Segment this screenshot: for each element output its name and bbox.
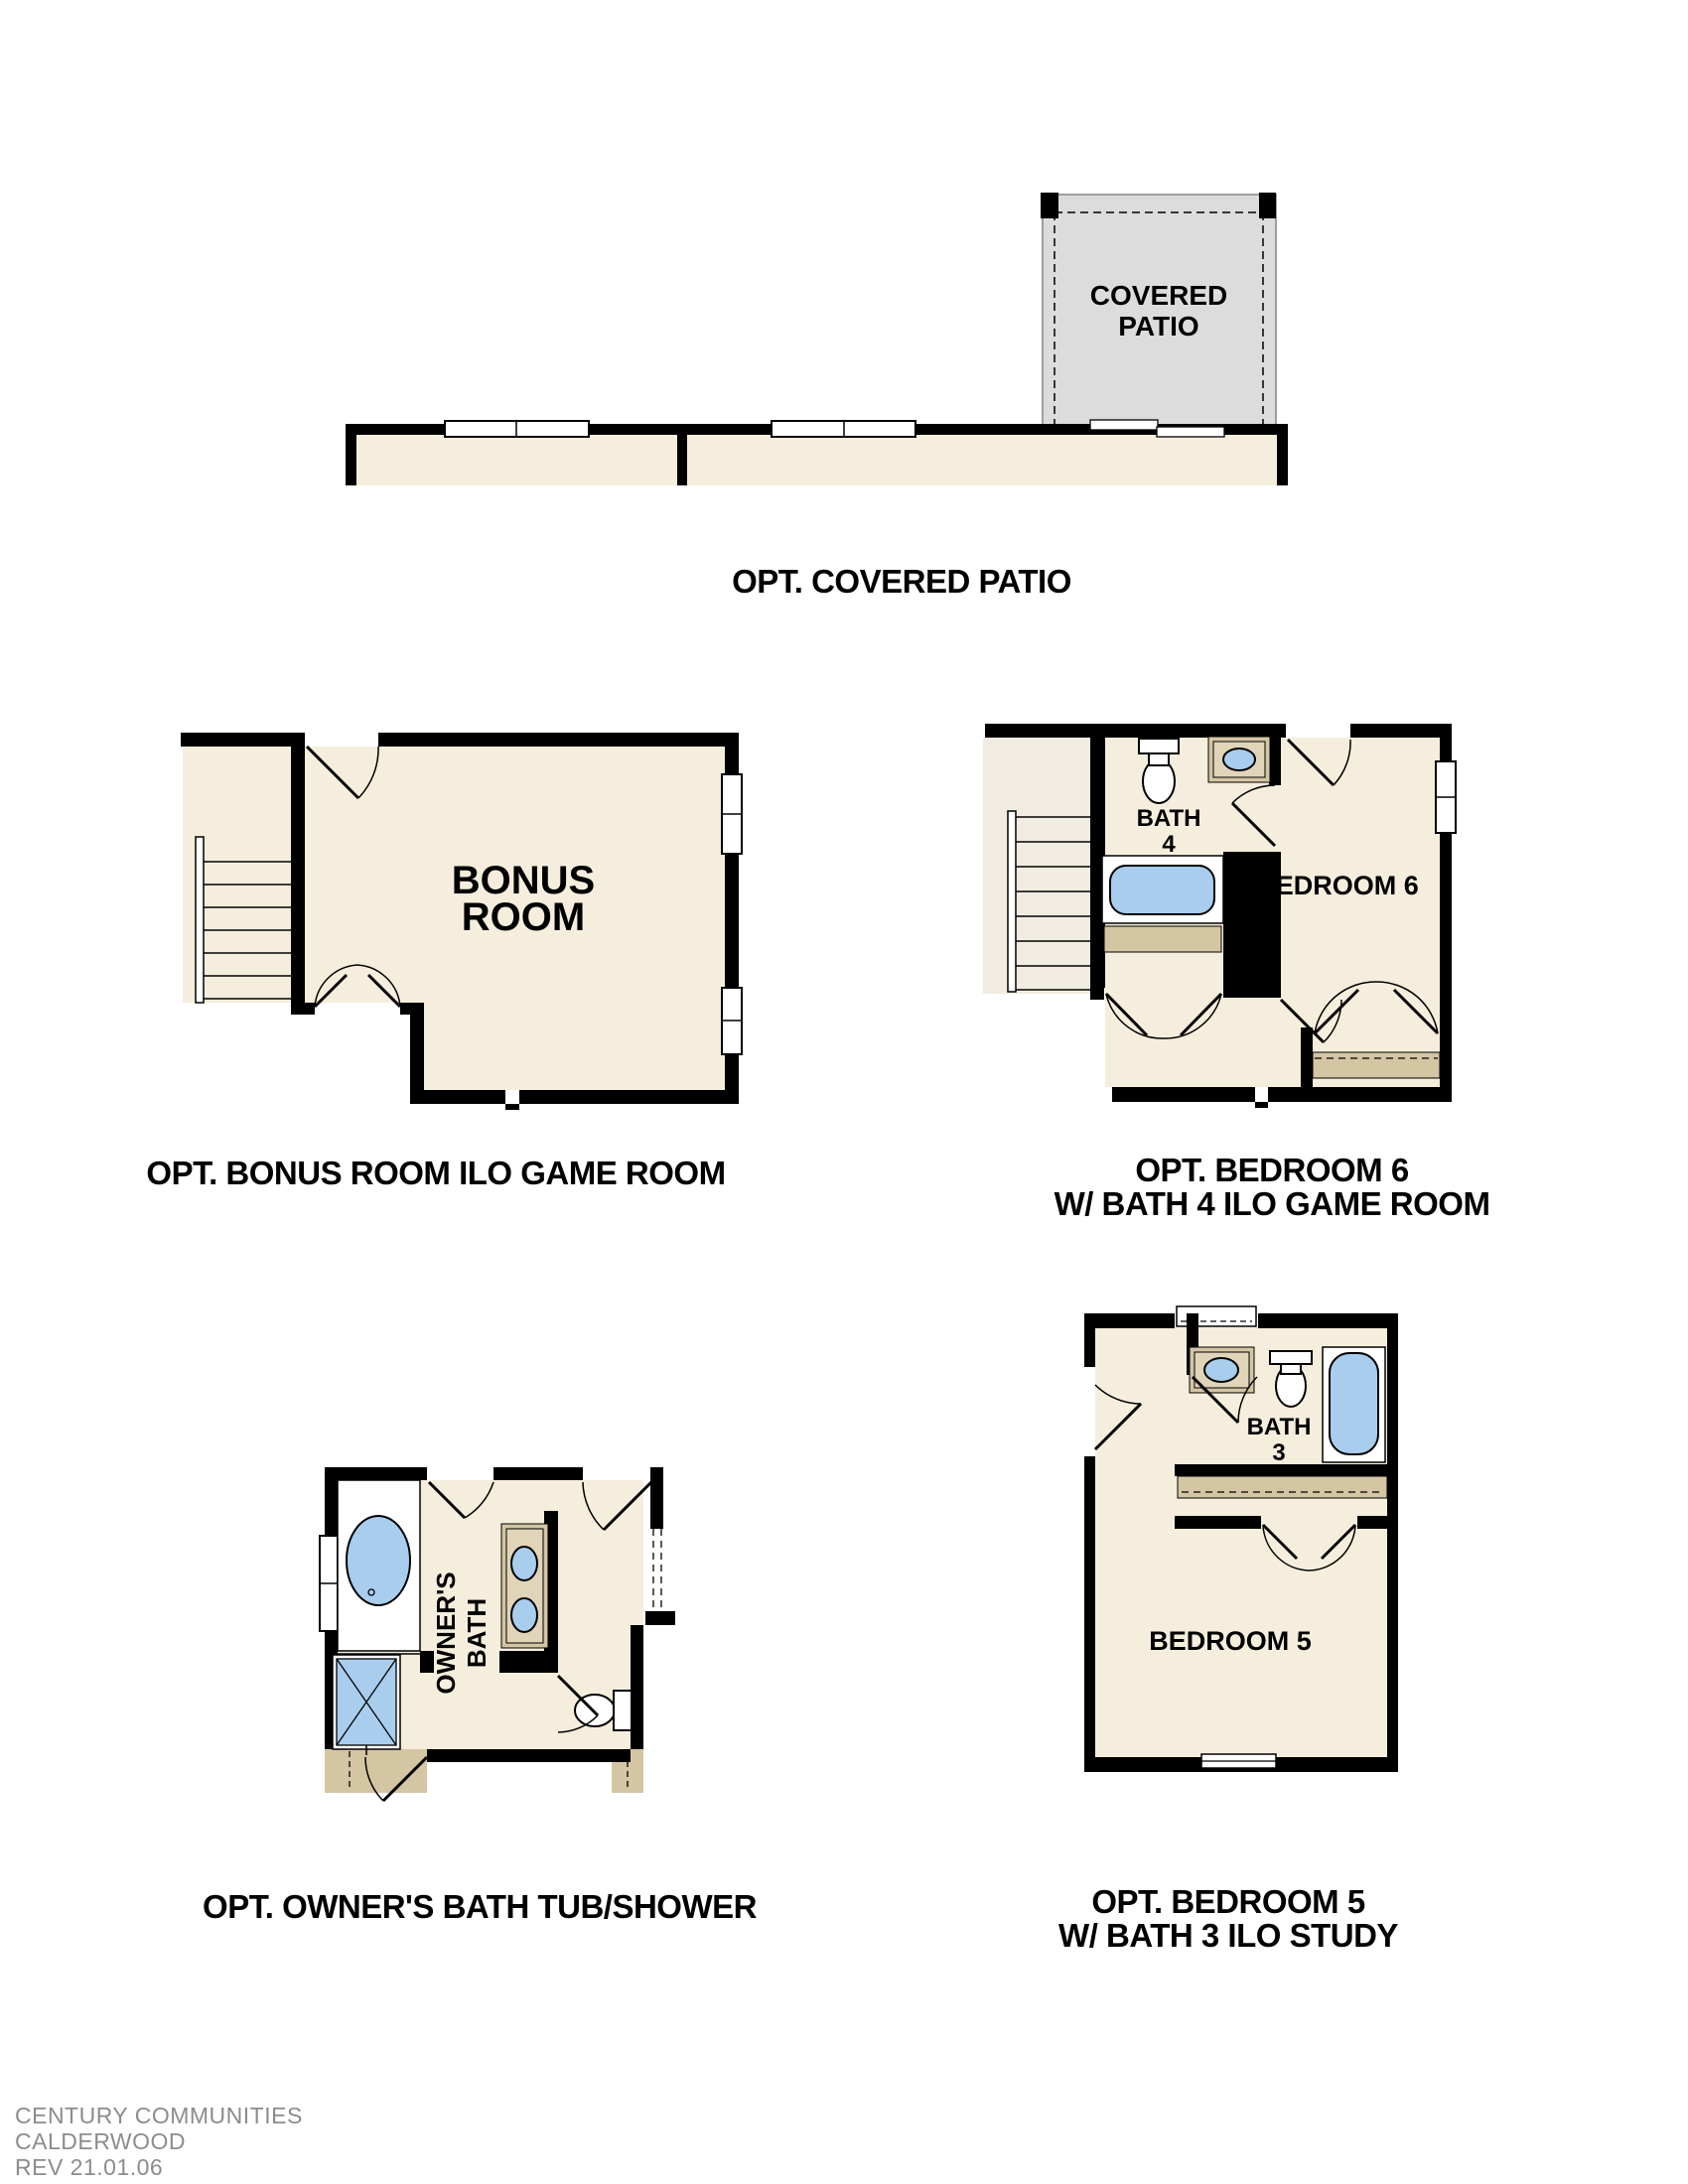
bonus-floor-lower [410,1003,739,1104]
double-sink-vanity [501,1524,548,1648]
bathtub [1102,856,1223,923]
bedroom6-caption-line2: W/ BATH 4 ILO GAME ROOM [1055,1185,1490,1222]
right-wall [1387,1313,1398,1757]
wall-left-stub [346,424,356,485]
stair-floor [983,738,1090,994]
owners-bath-caption: OPT. OWNER'S BATH TUB/SHOWER [203,1888,758,1925]
sink [1208,737,1270,782]
owners-bath-label-line1: OWNER'S [431,1571,461,1694]
top-wall [325,1467,427,1480]
plan-name: CALDERWOOD [15,2128,186,2154]
bonus-room-plan: BONUS ROOM [181,733,742,1110]
interior-wall [291,747,305,1003]
bathtub [1323,1347,1385,1462]
wall-break-tick [505,1104,519,1110]
bath-right-wall [1269,724,1281,785]
bottom-wall [427,1749,631,1762]
bath4-label-line1: BATH [1137,805,1201,832]
floor-plan-sheet: COVERED PATIO OPT. COVERED PATIO [0,0,1688,2184]
window [772,421,915,437]
left-wall-lower [1084,1456,1095,1757]
builder-name: CENTURY COMMUNITIES [15,2103,303,2128]
bottom-wall [1112,1087,1452,1102]
bonus-room-label-line2: ROOM [462,895,585,939]
wall-mid-stub [677,435,687,485]
shower [333,1655,400,1755]
patio-post-right [1259,193,1276,218]
cased-opening-dashed [653,1529,661,1611]
toilet [575,1691,632,1730]
closet-bottom-wall [1175,1516,1261,1529]
patio-post-left [1041,193,1058,218]
covered-patio-plan: COVERED PATIO [346,193,1288,485]
bottom-wall [410,1090,739,1104]
bedroom6-room-label: BEDROOM 6 [1256,871,1419,900]
wall-right-stub [1277,424,1288,485]
wall-break [505,1090,519,1104]
bedroom6-caption-line1: OPT. BEDROOM 6 [1135,1152,1409,1188]
bath4-label-line2: 4 [1162,831,1176,858]
top-wall [493,1467,583,1480]
top-wall [1350,724,1450,738]
window [1436,761,1456,833]
window [722,988,742,1054]
window [320,1536,338,1631]
bath3-label-line2: 3 [1272,1439,1285,1466]
patio-room-label-line2: PATIO [1118,311,1198,341]
window [722,774,742,854]
owners-bath-label-line2: BATH [462,1598,492,1668]
toilet [1139,739,1179,803]
title-block: CENTURY COMMUNITIES CALDERWOOD REV 21.01… [15,2103,303,2180]
bedroom5-plan: BATH 3 BEDROOM 5 [1084,1306,1398,1772]
top-wall [1258,1313,1398,1328]
bath3-label-line1: BATH [1247,1414,1312,1440]
wall-break-tick [1255,1102,1268,1108]
floor-plan-drawing: COVERED PATIO OPT. COVERED PATIO [0,0,1688,2184]
linen-shelf [1104,926,1221,952]
closet-wall [1301,1027,1313,1087]
jamb [291,1003,315,1015]
bonus-room-caption: OPT. BONUS ROOM ILO GAME ROOM [146,1155,725,1191]
bedroom6-plan: BATH 4 BEDROOM 6 [983,724,1456,1108]
revision-number: REV 21.01.06 [15,2154,163,2180]
window [1201,1754,1276,1768]
left-wall [325,1467,338,1536]
closet-top-wall [1175,1464,1398,1476]
patio-room-label-line1: COVERED [1090,280,1227,311]
bedroom5-caption-line1: OPT. BEDROOM 5 [1091,1883,1365,1920]
top-wall [1084,1313,1175,1328]
wall-break [1255,1087,1268,1102]
owners-tub [338,1480,420,1654]
corner-post [650,1467,663,1480]
left-wall [1084,1313,1095,1367]
closet-bottom-wall [1357,1516,1398,1529]
door-opening [305,733,378,747]
bedroom5-room-label: BEDROOM 5 [1149,1626,1312,1656]
sink [1190,1347,1254,1393]
window [445,421,589,437]
owners-bath-plan: OWNER'S BATH [320,1467,675,1801]
corner-wall [410,1003,424,1104]
bedroom5-caption-line2: W/ BATH 3 ILO STUDY [1058,1917,1398,1954]
covered-patio-caption: OPT. COVERED PATIO [732,563,1071,600]
wall-stub [499,1651,558,1673]
house-floor-strip [349,435,1288,485]
wall-nib [645,1611,675,1625]
right-wall [650,1480,663,1529]
top-wall [985,724,1286,738]
top-wall [181,733,733,747]
